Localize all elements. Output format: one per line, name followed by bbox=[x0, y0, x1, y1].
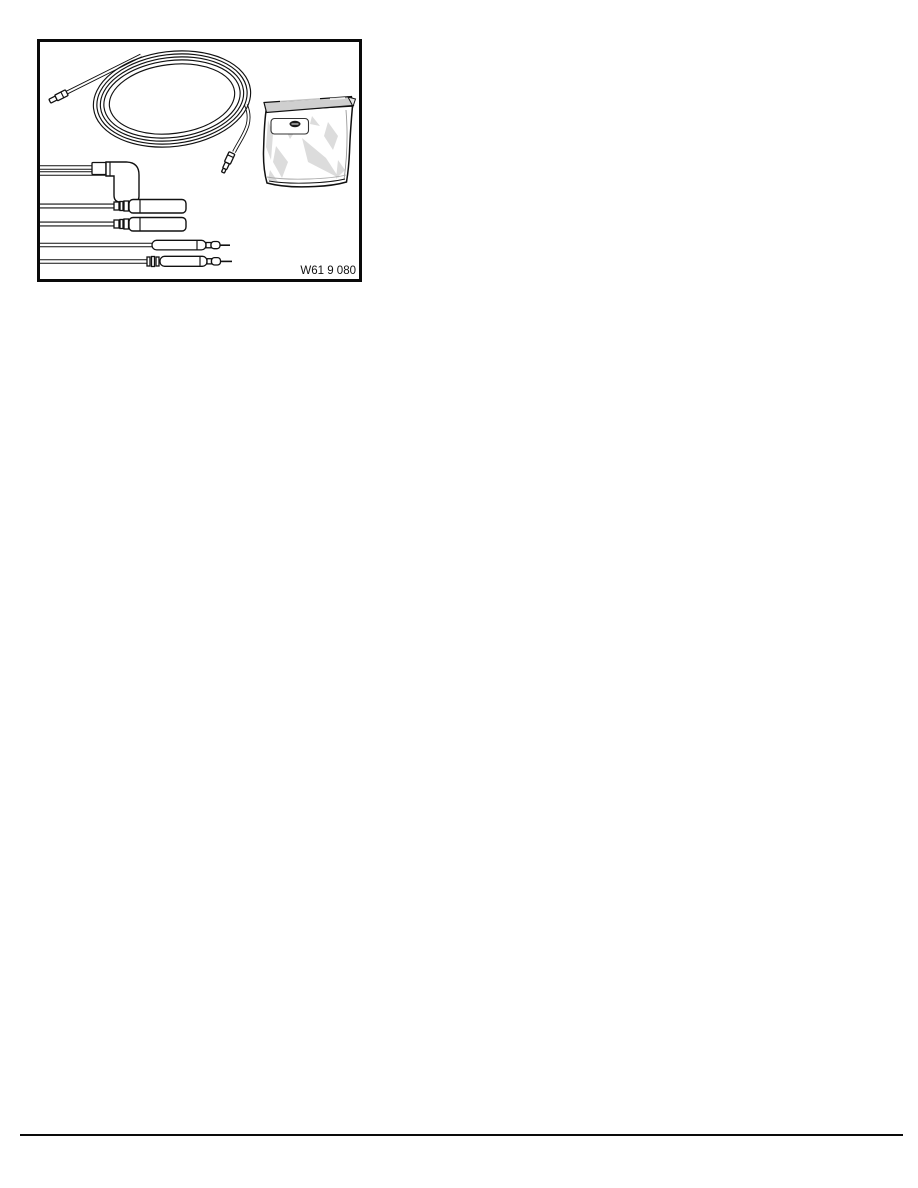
test-probe-leads-icon bbox=[40, 240, 232, 266]
coiled-cable-icon bbox=[48, 42, 256, 174]
bag-label-icon bbox=[271, 119, 309, 135]
plastic-bag-icon bbox=[263, 97, 355, 187]
cable-terminal-right-icon bbox=[220, 152, 235, 174]
manual-page: W61 9 080 bbox=[0, 0, 918, 1188]
figure-label: W61 9 080 bbox=[300, 265, 356, 277]
footer-rule bbox=[20, 1134, 903, 1136]
cable-terminal-left-icon bbox=[48, 90, 68, 104]
tool-kit-illustration: W61 9 080 bbox=[40, 42, 359, 279]
right-angle-boot-lead-icon bbox=[40, 162, 139, 202]
sleeve-connector-leads-icon bbox=[40, 200, 186, 232]
figure-box: W61 9 080 bbox=[37, 39, 362, 282]
